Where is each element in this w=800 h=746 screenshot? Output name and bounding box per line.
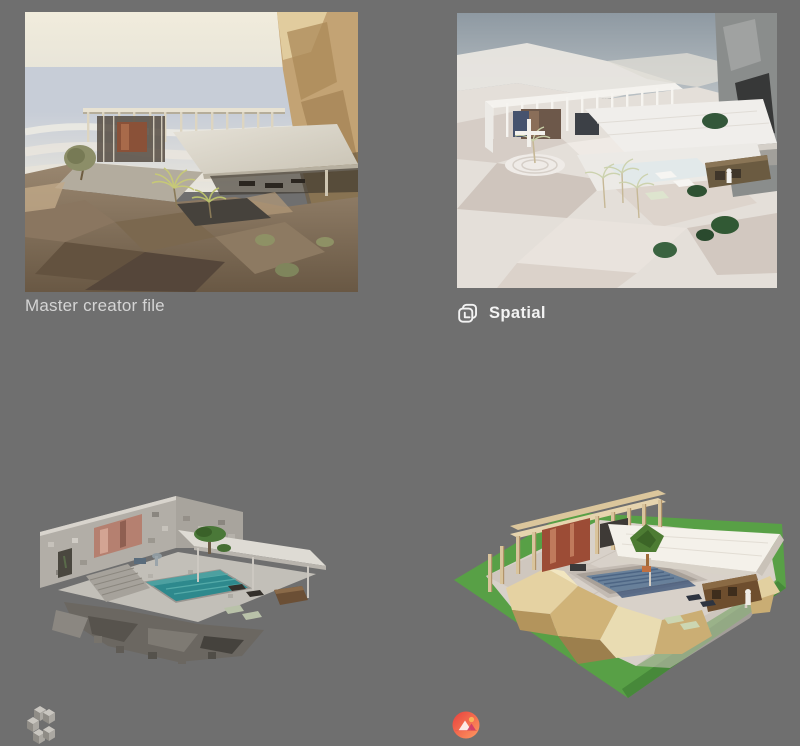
page-background: Master creator file [0, 0, 800, 746]
spatial-caption: Spatial [489, 304, 546, 323]
master-creator-render-image [25, 12, 358, 292]
lowpoly-render [450, 468, 790, 703]
voxel-render [28, 490, 330, 668]
spatial-logo-icon [455, 301, 480, 326]
master-caption: Master creator file [25, 296, 165, 316]
voxel-cubes-logo-icon [22, 705, 58, 746]
spatial-brand-row: Spatial [455, 300, 546, 326]
spatial-render-image [457, 13, 777, 288]
red-circle-pyramids-logo-icon [452, 711, 480, 744]
spatial-render [457, 13, 777, 288]
voxel-render-image [28, 490, 330, 668]
photoreal-render [25, 12, 358, 292]
lowpoly-render-image [450, 468, 790, 703]
